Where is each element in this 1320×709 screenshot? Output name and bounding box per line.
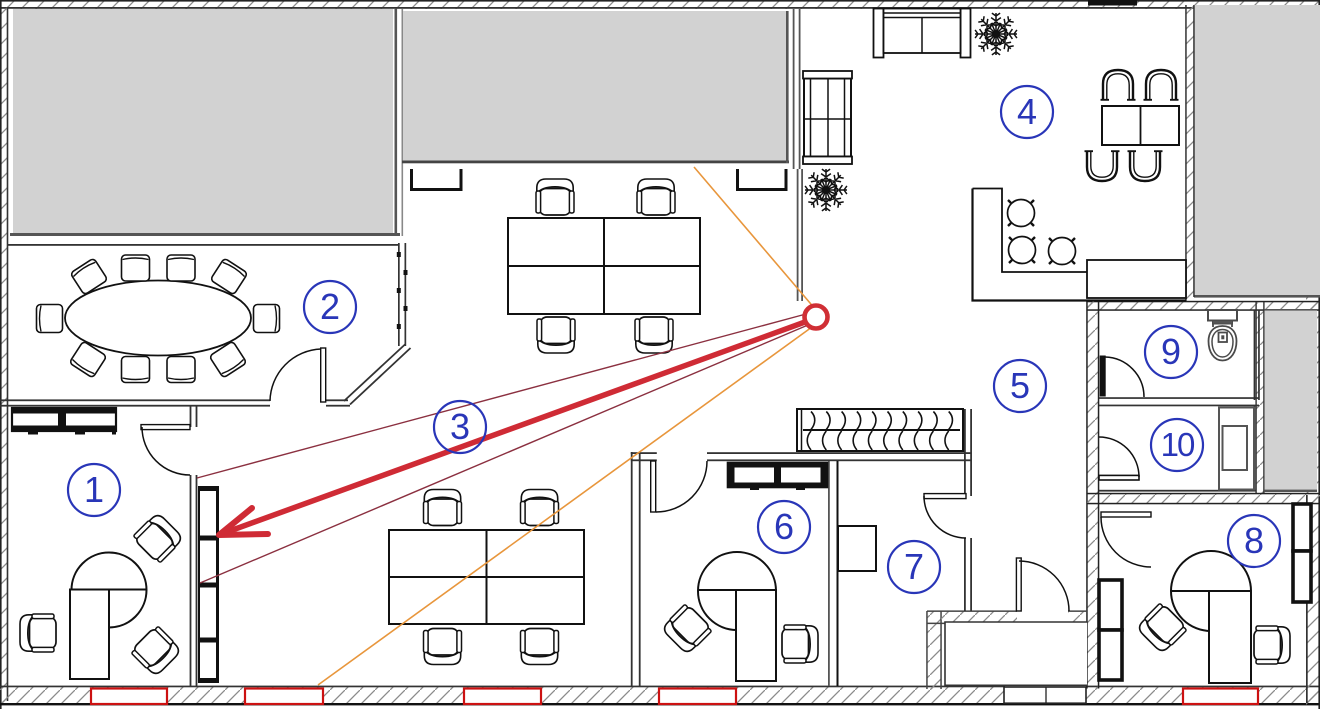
svg-text:10: 10: [1161, 426, 1195, 463]
svg-text:6: 6: [774, 506, 794, 547]
svg-text:2: 2: [320, 286, 340, 327]
svg-text:9: 9: [1161, 331, 1181, 372]
svg-text:8: 8: [1244, 520, 1264, 561]
svg-text:1: 1: [84, 469, 104, 510]
svg-text:4: 4: [1017, 91, 1037, 132]
svg-text:5: 5: [1010, 365, 1030, 406]
svg-text:3: 3: [450, 406, 470, 447]
svg-text:7: 7: [904, 546, 924, 587]
